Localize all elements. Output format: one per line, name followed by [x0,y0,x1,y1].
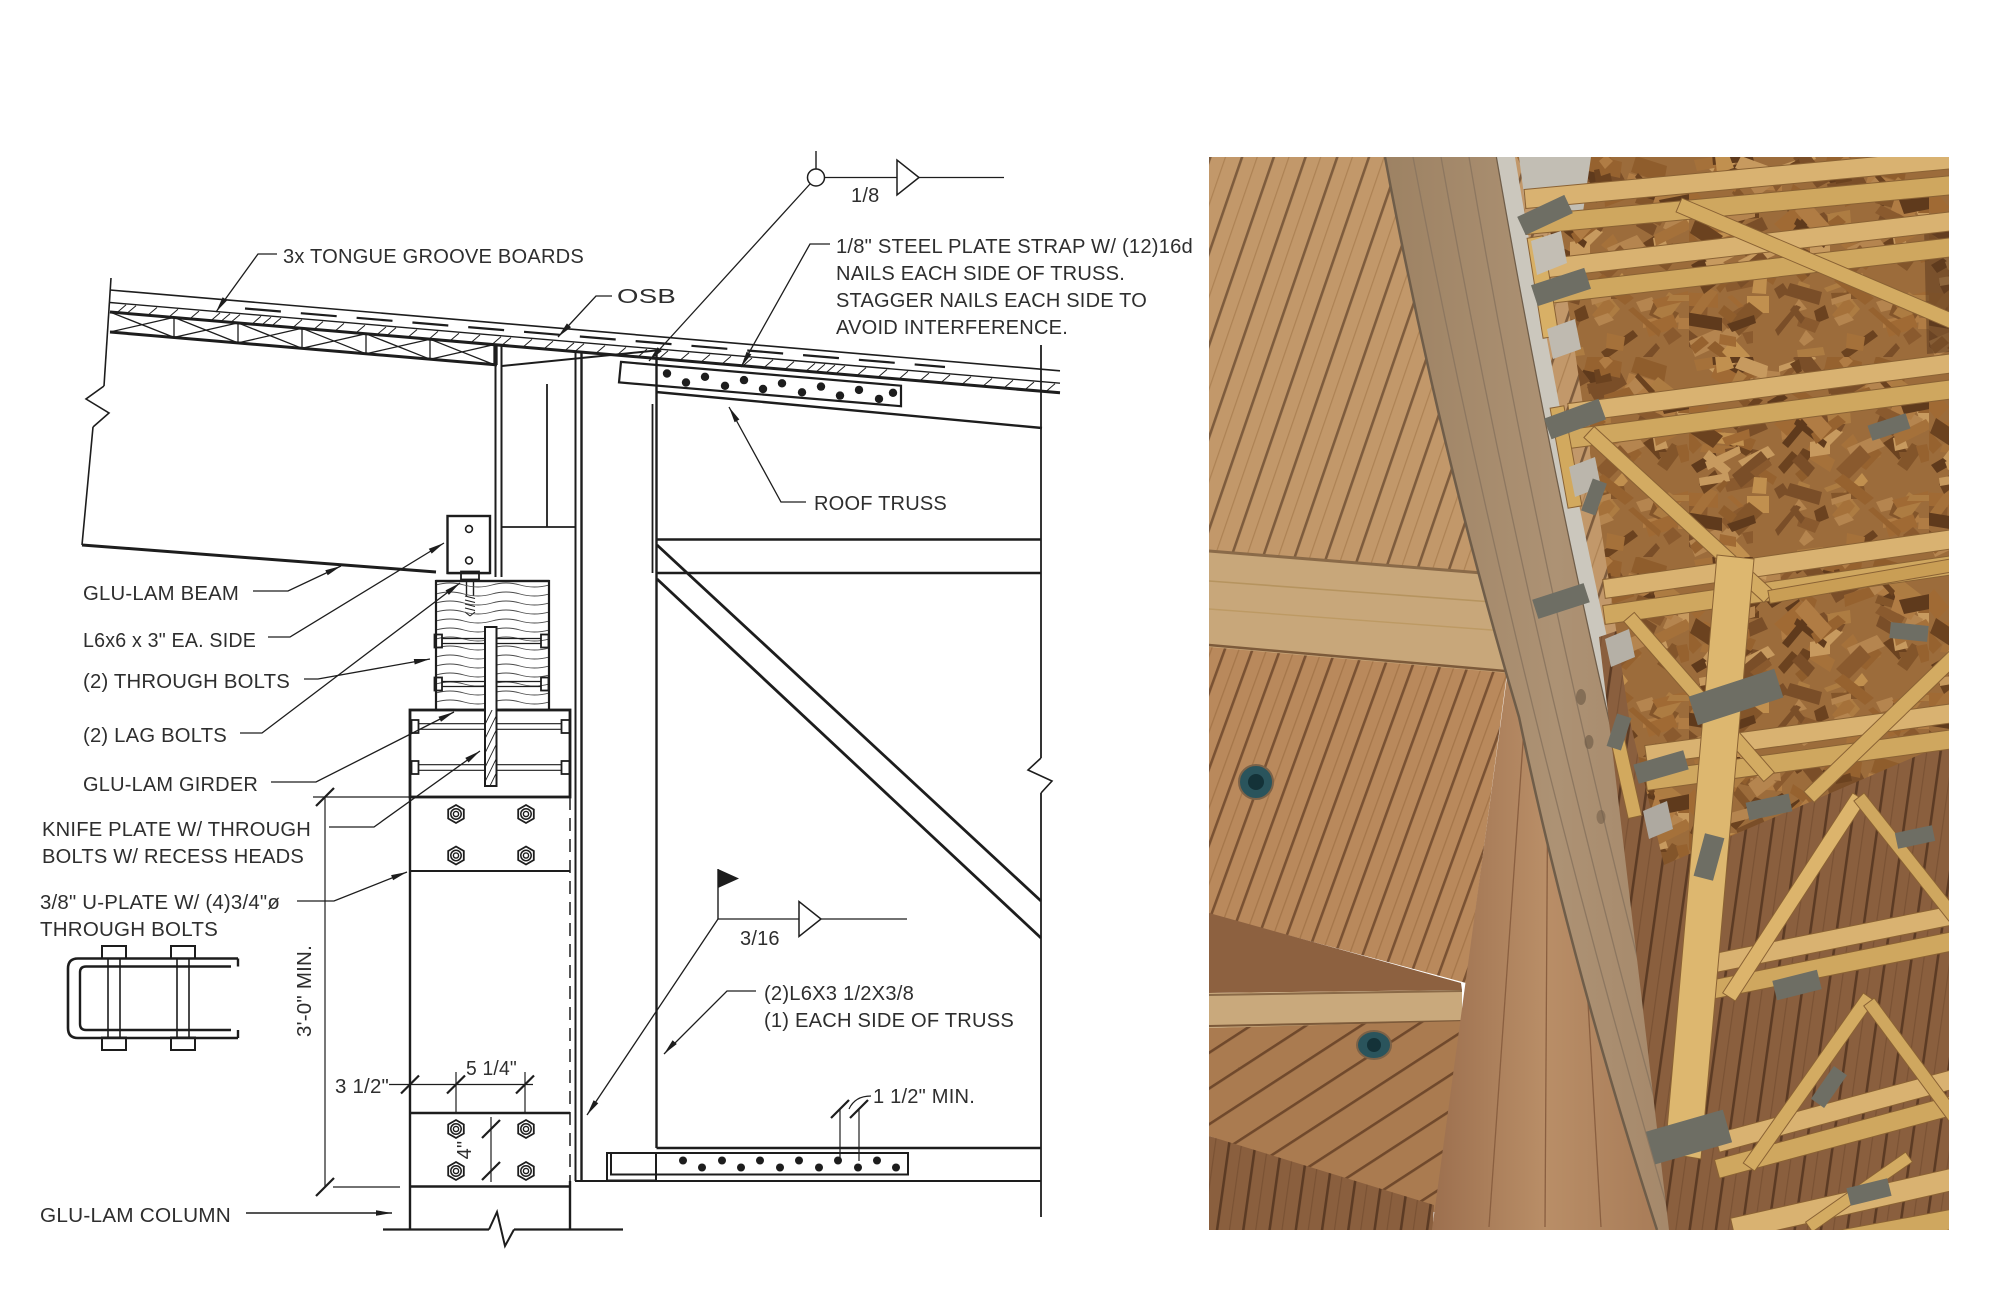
svg-text:THROUGH BOLTS: THROUGH BOLTS [40,919,218,941]
svg-text:GLU-LAM BEAM: GLU-LAM BEAM [83,583,239,605]
svg-text:(2) THROUGH BOLTS: (2) THROUGH BOLTS [83,671,290,693]
svg-text:3'-0" MIN.: 3'-0" MIN. [294,945,316,1037]
svg-text:AVOID INTERFERENCE.: AVOID INTERFERENCE. [836,317,1068,339]
svg-text:BOLTS W/ RECESS HEADS: BOLTS W/ RECESS HEADS [42,846,304,868]
svg-text:GLU-LAM COLUMN: GLU-LAM COLUMN [40,1205,231,1227]
svg-text:OSB: OSB [617,286,676,308]
svg-text:L6x6 x 3" EA. SIDE: L6x6 x 3" EA. SIDE [83,630,256,652]
svg-text:NAILS EACH SIDE OF TRUSS.: NAILS EACH SIDE OF TRUSS. [836,263,1125,285]
svg-text:GLU-LAM GIRDER: GLU-LAM GIRDER [83,774,258,796]
svg-text:(1) EACH SIDE OF TRUSS: (1) EACH SIDE OF TRUSS [764,1010,1014,1032]
svg-text:(2) LAG BOLTS: (2) LAG BOLTS [83,725,227,747]
svg-text:(2)L6X3 1/2X3/8: (2)L6X3 1/2X3/8 [764,983,914,1005]
svg-text:4": 4" [454,1141,476,1160]
svg-text:1 1/2" MIN.: 1 1/2" MIN. [873,1086,975,1108]
svg-text:STAGGER NAILS EACH SIDE TO: STAGGER NAILS EACH SIDE TO [836,290,1147,312]
svg-text:ROOF TRUSS: ROOF TRUSS [814,493,947,515]
svg-text:5 1/4": 5 1/4" [466,1058,517,1080]
svg-text:3 1/2": 3 1/2" [335,1076,389,1098]
svg-text:KNIFE PLATE W/ THROUGH: KNIFE PLATE W/ THROUGH [42,819,311,841]
svg-text:1/8" STEEL PLATE STRAP W/ (12): 1/8" STEEL PLATE STRAP W/ (12)16d [836,236,1193,258]
svg-text:1/8: 1/8 [851,185,879,207]
svg-text:3/8" U-PLATE W/ (4)3/4"ø: 3/8" U-PLATE W/ (4)3/4"ø [40,892,280,914]
svg-text:3x TONGUE GROOVE BOARDS: 3x TONGUE GROOVE BOARDS [283,246,584,268]
svg-text:3/16: 3/16 [740,928,780,950]
